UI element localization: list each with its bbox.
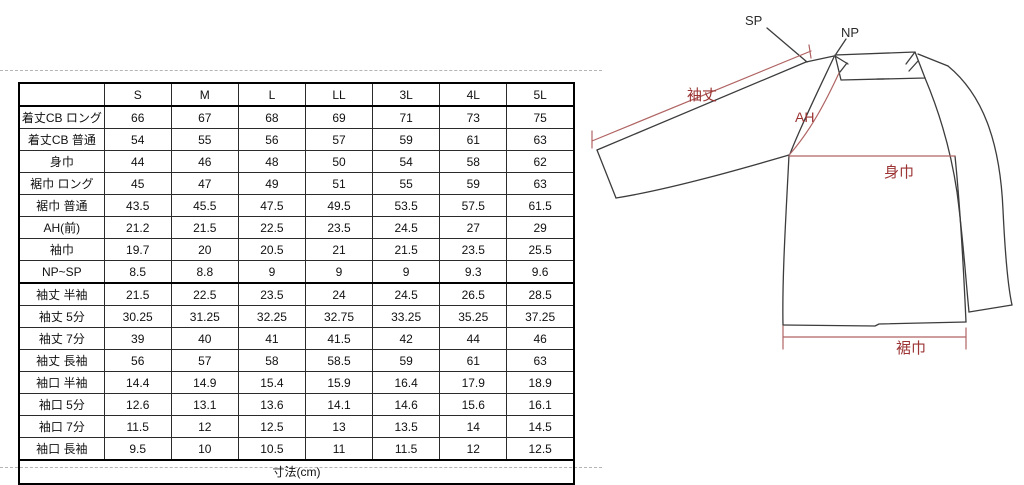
value-cell: 12	[171, 416, 238, 438]
value-cell: 21.5	[104, 283, 171, 306]
neck-point-label: NP	[841, 25, 859, 40]
value-cell: 23.5	[305, 217, 372, 239]
value-cell: 8.8	[171, 261, 238, 284]
size-column-header: M	[171, 83, 238, 106]
value-cell: 15.9	[305, 372, 372, 394]
value-cell: 17.9	[440, 372, 507, 394]
value-cell: 22.5	[238, 217, 305, 239]
table-row: 袖口 5分12.613.113.614.114.615.616.1	[19, 394, 574, 416]
size-column-header: 5L	[507, 83, 574, 106]
table-row: 袖口 長袖9.51010.51111.51212.5	[19, 438, 574, 461]
value-cell: 28.5	[507, 283, 574, 306]
value-cell: 25.5	[507, 239, 574, 261]
value-cell: 15.6	[440, 394, 507, 416]
value-cell: 22.5	[171, 283, 238, 306]
value-cell: 41.5	[305, 328, 372, 350]
table-row: AH(前)21.221.522.523.524.52729	[19, 217, 574, 239]
value-cell: 63	[507, 173, 574, 195]
value-cell: 32.25	[238, 306, 305, 328]
value-cell: 40	[171, 328, 238, 350]
garment-diagram: SP NP 袖丈 AH 身巾 裾巾	[585, 0, 1024, 477]
left-raglan-seam	[790, 57, 834, 154]
value-cell: 69	[305, 106, 372, 129]
value-cell: 59	[373, 350, 440, 372]
value-cell: 55	[171, 129, 238, 151]
value-cell: 66	[104, 106, 171, 129]
value-cell: 14.5	[507, 416, 574, 438]
right-shoulder-line	[918, 54, 948, 66]
value-cell: 8.5	[104, 261, 171, 284]
left-sleeve-cuff	[597, 150, 616, 198]
value-cell: 14.1	[305, 394, 372, 416]
value-cell: 73	[440, 106, 507, 129]
row-label-cell: 袖丈 7分	[19, 328, 104, 350]
value-cell: 54	[104, 129, 171, 151]
size-column-header: 3L	[373, 83, 440, 106]
np-pointer-line	[836, 39, 846, 54]
value-cell: 68	[238, 106, 305, 129]
value-cell: 12	[440, 438, 507, 461]
value-cell: 24.5	[373, 283, 440, 306]
body-left-seam	[783, 155, 789, 325]
left-sleeve-bottom-edge	[616, 155, 789, 198]
page-break-gridline-top	[0, 70, 602, 71]
value-cell: 24	[305, 283, 372, 306]
hem-width-dimension-line	[783, 326, 966, 349]
value-cell: 12.5	[507, 438, 574, 461]
value-cell: 29	[507, 217, 574, 239]
value-cell: 13.5	[373, 416, 440, 438]
value-cell: 9	[305, 261, 372, 284]
right-sleeve-inner-edge	[925, 78, 969, 312]
value-cell: 47	[171, 173, 238, 195]
sleeve-length-label: 袖丈	[687, 87, 717, 104]
table-row: 袖丈 5分30.2531.2532.2532.7533.2535.2537.25	[19, 306, 574, 328]
row-label-cell: 袖丈 長袖	[19, 350, 104, 372]
value-cell: 63	[507, 129, 574, 151]
table-row: 着丈CB ロング66676869717375	[19, 106, 574, 129]
measurement-table-container: SMLLL3L4L5L 着丈CB ロング66676869717375着丈CB 普…	[18, 82, 575, 485]
value-cell: 12.5	[238, 416, 305, 438]
value-cell: 11	[305, 438, 372, 461]
size-column-header: L	[238, 83, 305, 106]
table-row: 袖巾19.72020.52121.523.525.5	[19, 239, 574, 261]
value-cell: 44	[440, 328, 507, 350]
value-cell: 16.4	[373, 372, 440, 394]
value-cell: 49.5	[305, 195, 372, 217]
measurement-table: SMLLL3L4L5L 着丈CB ロング66676869717375着丈CB 普…	[18, 82, 575, 485]
value-cell: 23.5	[440, 239, 507, 261]
row-label-cell: NP~SP	[19, 261, 104, 284]
row-label-cell: AH(前)	[19, 217, 104, 239]
value-cell: 58.5	[305, 350, 372, 372]
body-right-seam	[955, 156, 966, 322]
table-row: 裾巾 ロング45474951555963	[19, 173, 574, 195]
value-cell: 61	[440, 350, 507, 372]
value-cell: 20.5	[238, 239, 305, 261]
value-cell: 9	[373, 261, 440, 284]
value-cell: 23.5	[238, 283, 305, 306]
value-cell: 21.2	[104, 217, 171, 239]
armhole-label: AH	[795, 109, 814, 125]
value-cell: 51	[305, 173, 372, 195]
value-cell: 57.5	[440, 195, 507, 217]
value-cell: 55	[373, 173, 440, 195]
value-cell: 58	[238, 350, 305, 372]
value-cell: 35.25	[440, 306, 507, 328]
value-cell: 24.5	[373, 217, 440, 239]
value-cell: 45	[104, 173, 171, 195]
value-cell: 58	[440, 151, 507, 173]
row-label-cell: 袖口 7分	[19, 416, 104, 438]
value-cell: 56	[104, 350, 171, 372]
value-cell: 14.9	[171, 372, 238, 394]
row-label-cell: 身巾	[19, 151, 104, 173]
value-cell: 18.9	[507, 372, 574, 394]
value-cell: 54	[373, 151, 440, 173]
row-label-cell: 袖口 5分	[19, 394, 104, 416]
table-row: 袖丈 長袖56575858.5596163	[19, 350, 574, 372]
value-cell: 11.5	[104, 416, 171, 438]
value-cell: 46	[171, 151, 238, 173]
right-sleeve-cuff	[969, 305, 1012, 312]
value-cell: 61.5	[507, 195, 574, 217]
value-cell: 75	[507, 106, 574, 129]
size-column-header: LL	[305, 83, 372, 106]
table-row: 着丈CB 普通54555657596163	[19, 129, 574, 151]
body-width-label: 身巾	[884, 164, 914, 181]
sp-pointer-line	[767, 28, 807, 62]
value-cell: 32.75	[305, 306, 372, 328]
row-label-cell: 袖丈 5分	[19, 306, 104, 328]
value-cell: 10	[171, 438, 238, 461]
value-cell: 56	[238, 129, 305, 151]
table-row: 袖丈 半袖21.522.523.52424.526.528.5	[19, 283, 574, 306]
value-cell: 46	[507, 328, 574, 350]
value-cell: 50	[305, 151, 372, 173]
value-cell: 45.5	[171, 195, 238, 217]
value-cell: 10.5	[238, 438, 305, 461]
value-cell: 59	[373, 129, 440, 151]
table-row: 袖口 7分11.51212.51313.51414.5	[19, 416, 574, 438]
value-cell: 42	[373, 328, 440, 350]
value-cell: 61	[440, 129, 507, 151]
value-cell: 13.1	[171, 394, 238, 416]
hem-line	[783, 322, 966, 326]
value-cell: 9	[238, 261, 305, 284]
size-header-row: SMLLL3L4L5L	[19, 83, 574, 106]
row-label-cell: 着丈CB 普通	[19, 129, 104, 151]
value-cell: 21.5	[373, 239, 440, 261]
table-row: 身巾44464850545862	[19, 151, 574, 173]
value-cell: 53.5	[373, 195, 440, 217]
value-cell: 44	[104, 151, 171, 173]
value-cell: 15.4	[238, 372, 305, 394]
shoulder-point-label: SP	[745, 13, 762, 28]
value-cell: 31.25	[171, 306, 238, 328]
value-cell: 62	[507, 151, 574, 173]
corner-cell	[19, 83, 104, 106]
table-row: 袖丈 7分39404141.5424446	[19, 328, 574, 350]
row-label-cell: 裾巾 普通	[19, 195, 104, 217]
value-cell: 14.6	[373, 394, 440, 416]
value-cell: 21	[305, 239, 372, 261]
value-cell: 20	[171, 239, 238, 261]
value-cell: 41	[238, 328, 305, 350]
value-cell: 9.3	[440, 261, 507, 284]
size-column-header: S	[104, 83, 171, 106]
value-cell: 30.25	[104, 306, 171, 328]
row-label-cell: 着丈CB ロング	[19, 106, 104, 129]
table-row: 裾巾 普通43.545.547.549.553.557.561.5	[19, 195, 574, 217]
table-row: 袖口 半袖14.414.915.415.916.417.918.9	[19, 372, 574, 394]
value-cell: 14.4	[104, 372, 171, 394]
value-cell: 43.5	[104, 195, 171, 217]
value-cell: 9.6	[507, 261, 574, 284]
value-cell: 48	[238, 151, 305, 173]
row-label-cell: 裾巾 ロング	[19, 173, 104, 195]
row-label-cell: 袖巾	[19, 239, 104, 261]
value-cell: 71	[373, 106, 440, 129]
row-label-cell: 袖口 長袖	[19, 438, 104, 461]
row-label-cell: 袖丈 半袖	[19, 283, 104, 306]
value-cell: 57	[305, 129, 372, 151]
value-cell: 14	[440, 416, 507, 438]
size-column-header: 4L	[440, 83, 507, 106]
value-cell: 13	[305, 416, 372, 438]
value-cell: 37.25	[507, 306, 574, 328]
value-cell: 11.5	[373, 438, 440, 461]
table-row: NP~SP8.58.89999.39.6	[19, 261, 574, 284]
value-cell: 49	[238, 173, 305, 195]
value-cell: 59	[440, 173, 507, 195]
value-cell: 19.7	[104, 239, 171, 261]
value-cell: 21.5	[171, 217, 238, 239]
value-cell: 27	[440, 217, 507, 239]
value-cell: 39	[104, 328, 171, 350]
value-cell: 12.6	[104, 394, 171, 416]
value-cell: 26.5	[440, 283, 507, 306]
value-cell: 47.5	[238, 195, 305, 217]
value-cell: 13.6	[238, 394, 305, 416]
unit-note: 寸法(cm)	[19, 460, 574, 484]
size-spec-sheet: SMLLL3L4L5L 着丈CB ロング66676869717375着丈CB 普…	[0, 0, 1024, 477]
value-cell: 63	[507, 350, 574, 372]
value-cell: 33.25	[373, 306, 440, 328]
value-cell: 57	[171, 350, 238, 372]
row-label-cell: 袖口 半袖	[19, 372, 104, 394]
table-footer-row: 寸法(cm)	[19, 460, 574, 484]
hem-width-label: 裾巾	[896, 340, 926, 357]
value-cell: 16.1	[507, 394, 574, 416]
value-cell: 9.5	[104, 438, 171, 461]
value-cell: 67	[171, 106, 238, 129]
